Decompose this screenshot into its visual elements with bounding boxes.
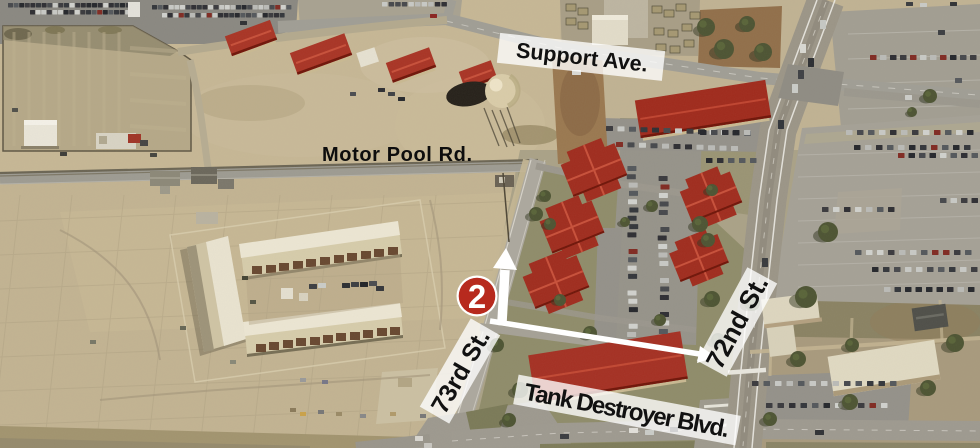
svg-text:Motor Pool Rd.: Motor Pool Rd. <box>322 144 472 166</box>
svg-text:2: 2 <box>468 278 486 315</box>
